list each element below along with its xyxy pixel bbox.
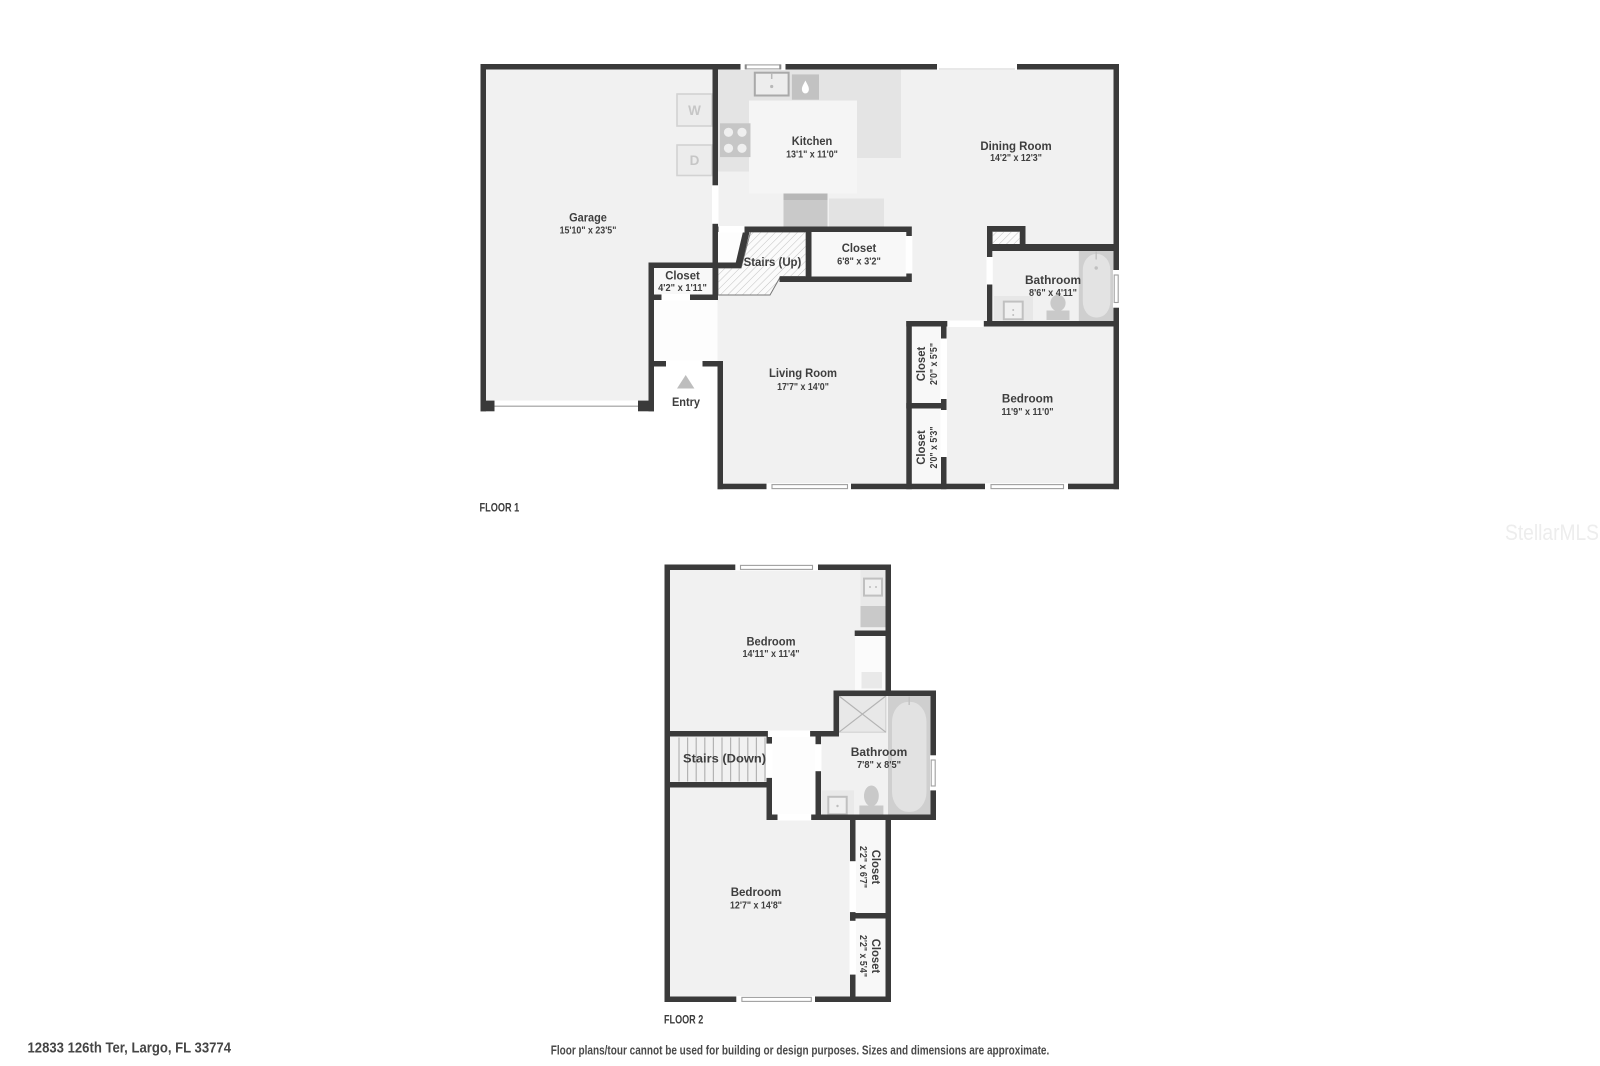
svg-text:Dining Room: Dining Room [980, 139, 1051, 153]
svg-text:FLOOR 2: FLOOR 2 [664, 1013, 703, 1027]
svg-text:Entry: Entry [672, 395, 700, 409]
svg-text:Bathroom: Bathroom [851, 745, 908, 759]
svg-text:2'2" x 6'7": 2'2" x 6'7" [857, 846, 868, 888]
svg-text:Kitchen: Kitchen [792, 134, 833, 148]
svg-text:Bathroom: Bathroom [1025, 273, 1081, 287]
svg-text:Closet: Closet [869, 939, 883, 974]
svg-text:12'7" x 14'8": 12'7" x 14'8" [730, 900, 782, 911]
svg-text:StellarMLS: StellarMLS [1505, 520, 1599, 545]
svg-text:4'2" x 1'11": 4'2" x 1'11" [658, 283, 707, 294]
svg-text:Bedroom: Bedroom [1002, 392, 1053, 406]
svg-text:Living Room: Living Room [769, 366, 837, 380]
svg-text:11'9" x 11'0": 11'9" x 11'0" [1002, 407, 1054, 418]
svg-text:14'2" x 12'3": 14'2" x 12'3" [990, 153, 1042, 164]
svg-text:8'6" x 4'11": 8'6" x 4'11" [1029, 288, 1077, 299]
svg-text:13'1" x 11'0": 13'1" x 11'0" [786, 150, 838, 161]
svg-text:14'11" x 11'4": 14'11" x 11'4" [743, 649, 800, 660]
svg-text:15'10" x 23'5": 15'10" x 23'5" [560, 226, 617, 237]
svg-text:Closet: Closet [842, 241, 877, 255]
svg-text:Bedroom: Bedroom [747, 635, 796, 649]
svg-text:7'8" x 8'5": 7'8" x 8'5" [857, 760, 901, 771]
svg-text:Floor plans/tour cannot be use: Floor plans/tour cannot be used for buil… [551, 1043, 1050, 1058]
svg-text:D: D [690, 153, 700, 168]
svg-text:2'0" x 5'3": 2'0" x 5'3" [929, 427, 940, 469]
svg-text:FLOOR 1: FLOOR 1 [480, 501, 520, 515]
svg-text:12833 126th Ter, Largo, FL 337: 12833 126th Ter, Largo, FL 33774 [28, 1041, 232, 1057]
svg-text:W: W [688, 103, 701, 118]
svg-text:2'2" x 5'4": 2'2" x 5'4" [857, 935, 868, 977]
svg-text:Stairs (Down): Stairs (Down) [683, 752, 766, 766]
svg-text:17'7" x 14'0": 17'7" x 14'0" [777, 382, 829, 393]
svg-text:6'8" x 3'2": 6'8" x 3'2" [837, 257, 881, 268]
svg-text:Closet: Closet [665, 268, 700, 282]
svg-text:2'0" x 5'5": 2'0" x 5'5" [929, 343, 940, 385]
svg-text:Garage: Garage [569, 211, 607, 225]
svg-text:Stairs (Up): Stairs (Up) [744, 255, 802, 269]
svg-text:Closet: Closet [869, 850, 883, 885]
svg-text:Closet: Closet [914, 430, 928, 465]
svg-text:Bedroom: Bedroom [731, 885, 782, 899]
svg-text:Closet: Closet [914, 347, 928, 382]
